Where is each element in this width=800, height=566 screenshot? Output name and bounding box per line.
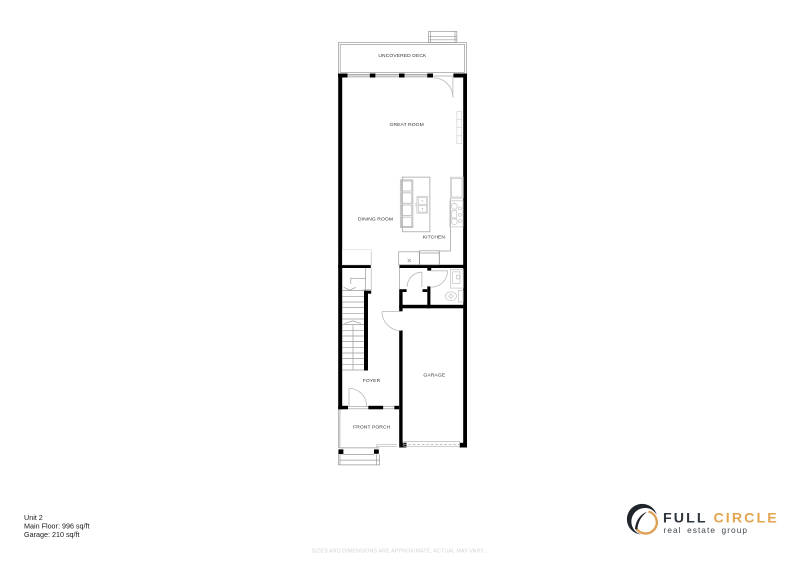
svg-text:FULL CIRCLE: FULL CIRCLE [663,510,779,526]
svg-text:UNCOVERED DECK: UNCOVERED DECK [378,53,427,59]
svg-text:DINING ROOM: DINING ROOM [358,217,393,223]
svg-text:Garage: 210 sq/ft: Garage: 210 sq/ft [24,530,80,539]
svg-text:KITCHEN: KITCHEN [423,235,446,241]
svg-text:SIZES AND DIMENSIONS ARE APPRO: SIZES AND DIMENSIONS ARE APPROXIMATE, AC… [312,549,488,555]
svg-text:GARAGE: GARAGE [423,372,445,378]
svg-text:FOYER: FOYER [363,378,381,384]
svg-text:FRONT PORCH: FRONT PORCH [353,424,391,430]
svg-text:GREAT ROOM: GREAT ROOM [390,122,424,128]
svg-text:real estate group: real estate group [664,525,749,535]
